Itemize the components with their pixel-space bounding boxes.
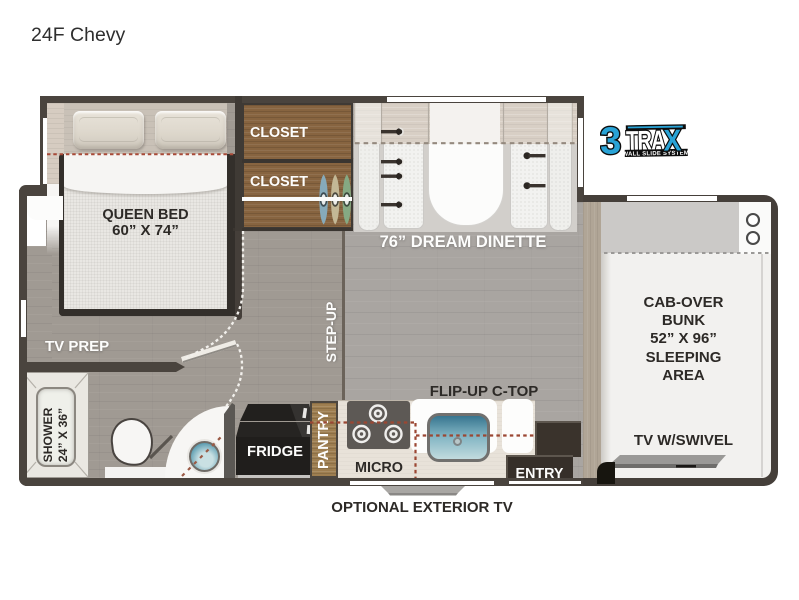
svg-text:TRA: TRA [626, 125, 666, 156]
svg-text:X: X [663, 123, 681, 157]
svg-text:3: 3 [600, 120, 622, 160]
